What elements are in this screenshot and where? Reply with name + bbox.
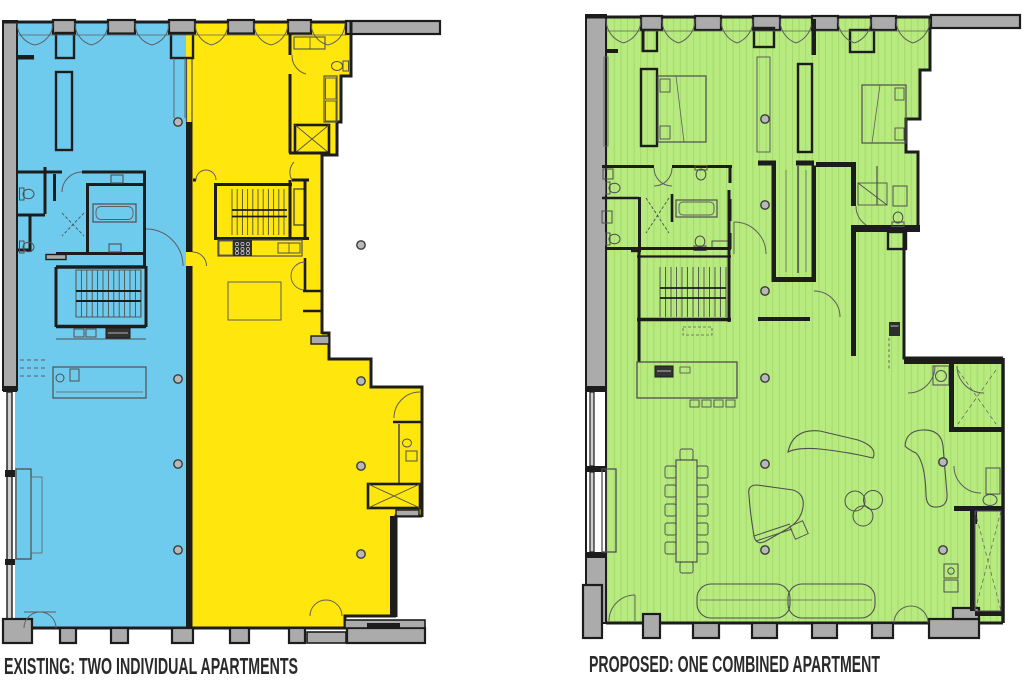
svg-text:PROPOSED: ONE COMBINED APARTME: PROPOSED: ONE COMBINED APARTMENT [589,651,880,677]
svg-text:EXISTING: TWO INDIVIDUAL APART: EXISTING: TWO INDIVIDUAL APARTMENTS [4,653,298,679]
